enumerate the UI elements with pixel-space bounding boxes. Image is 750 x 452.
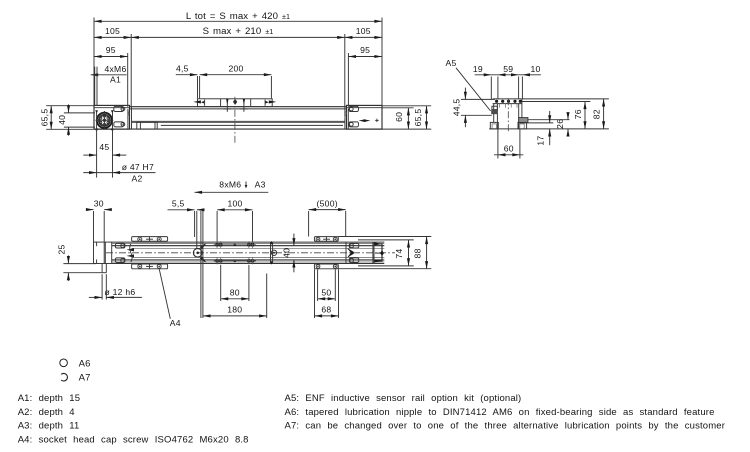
svg-text:5,5: 5,5 (172, 198, 185, 208)
svg-text:68: 68 (321, 305, 331, 315)
svg-text:65,5: 65,5 (40, 109, 50, 127)
svg-text:A1: depth 15: A1: depth 15 (18, 393, 80, 404)
svg-text:44,5: 44,5 (451, 99, 461, 117)
svg-text:ø 12 h6: ø 12 h6 (105, 287, 136, 297)
svg-text:105: 105 (356, 26, 371, 36)
svg-text:A2: A2 (131, 174, 142, 184)
svg-text:65,5: 65,5 (413, 109, 423, 127)
svg-text:17: 17 (536, 136, 546, 146)
svg-text:40: 40 (282, 248, 292, 258)
svg-text:95: 95 (106, 45, 116, 55)
svg-text:4,5: 4,5 (176, 64, 189, 74)
svg-text:100: 100 (227, 199, 242, 209)
svg-text:95: 95 (360, 45, 370, 55)
svg-text:200: 200 (228, 64, 243, 74)
svg-text:19: 19 (473, 64, 483, 74)
svg-text:A4: A4 (170, 318, 181, 328)
svg-text:80: 80 (230, 287, 240, 297)
svg-text:60: 60 (394, 112, 404, 122)
svg-text:8xM6: 8xM6 (219, 179, 241, 189)
svg-text:A2: depth 4: A2: depth 4 (18, 407, 75, 418)
svg-text:(500): (500) (317, 198, 338, 208)
svg-text:26: 26 (555, 119, 565, 129)
svg-text:60: 60 (504, 143, 514, 153)
svg-text:A3: A3 (255, 179, 266, 189)
svg-text:A7: A7 (79, 373, 91, 384)
svg-text:A5: ENF inductive sensor rail: A5: ENF inductive sensor rail option kit… (285, 393, 522, 404)
svg-text:A5: A5 (445, 58, 456, 68)
svg-text:76: 76 (573, 109, 583, 119)
svg-text:50: 50 (321, 287, 331, 297)
svg-text:30: 30 (94, 199, 104, 209)
svg-text:10: 10 (530, 64, 540, 74)
svg-text:A4: socket head cap screw ISO4: A4: socket head cap screw ISO4762 M6x20 … (18, 434, 249, 445)
svg-text:A6: tapered lubrication nipple: A6: tapered lubrication nipple to DIN714… (285, 407, 715, 418)
svg-text:88: 88 (412, 248, 422, 258)
svg-text:45: 45 (99, 142, 109, 152)
svg-text:L tot = S max + 420 ±1: L tot = S max + 420 ±1 (186, 11, 290, 22)
svg-text:25: 25 (56, 244, 66, 254)
svg-text:A7: can be changed over to one: A7: can be changed over to one of the th… (285, 421, 726, 432)
svg-text:S max + 210 ±1: S max + 210 ±1 (203, 26, 274, 37)
svg-text:74: 74 (394, 249, 404, 259)
svg-text:A3: depth 11: A3: depth 11 (18, 421, 80, 432)
svg-text:180: 180 (227, 305, 242, 315)
svg-text:4xM6: 4xM6 (104, 64, 126, 74)
svg-text:A1: A1 (110, 75, 121, 85)
svg-text:82: 82 (592, 109, 602, 119)
svg-text:ø 47 H7: ø 47 H7 (122, 162, 154, 172)
svg-text:105: 105 (105, 26, 120, 36)
svg-text:40: 40 (57, 115, 67, 125)
svg-text:A6: A6 (79, 358, 91, 369)
svg-text:59: 59 (503, 64, 513, 74)
